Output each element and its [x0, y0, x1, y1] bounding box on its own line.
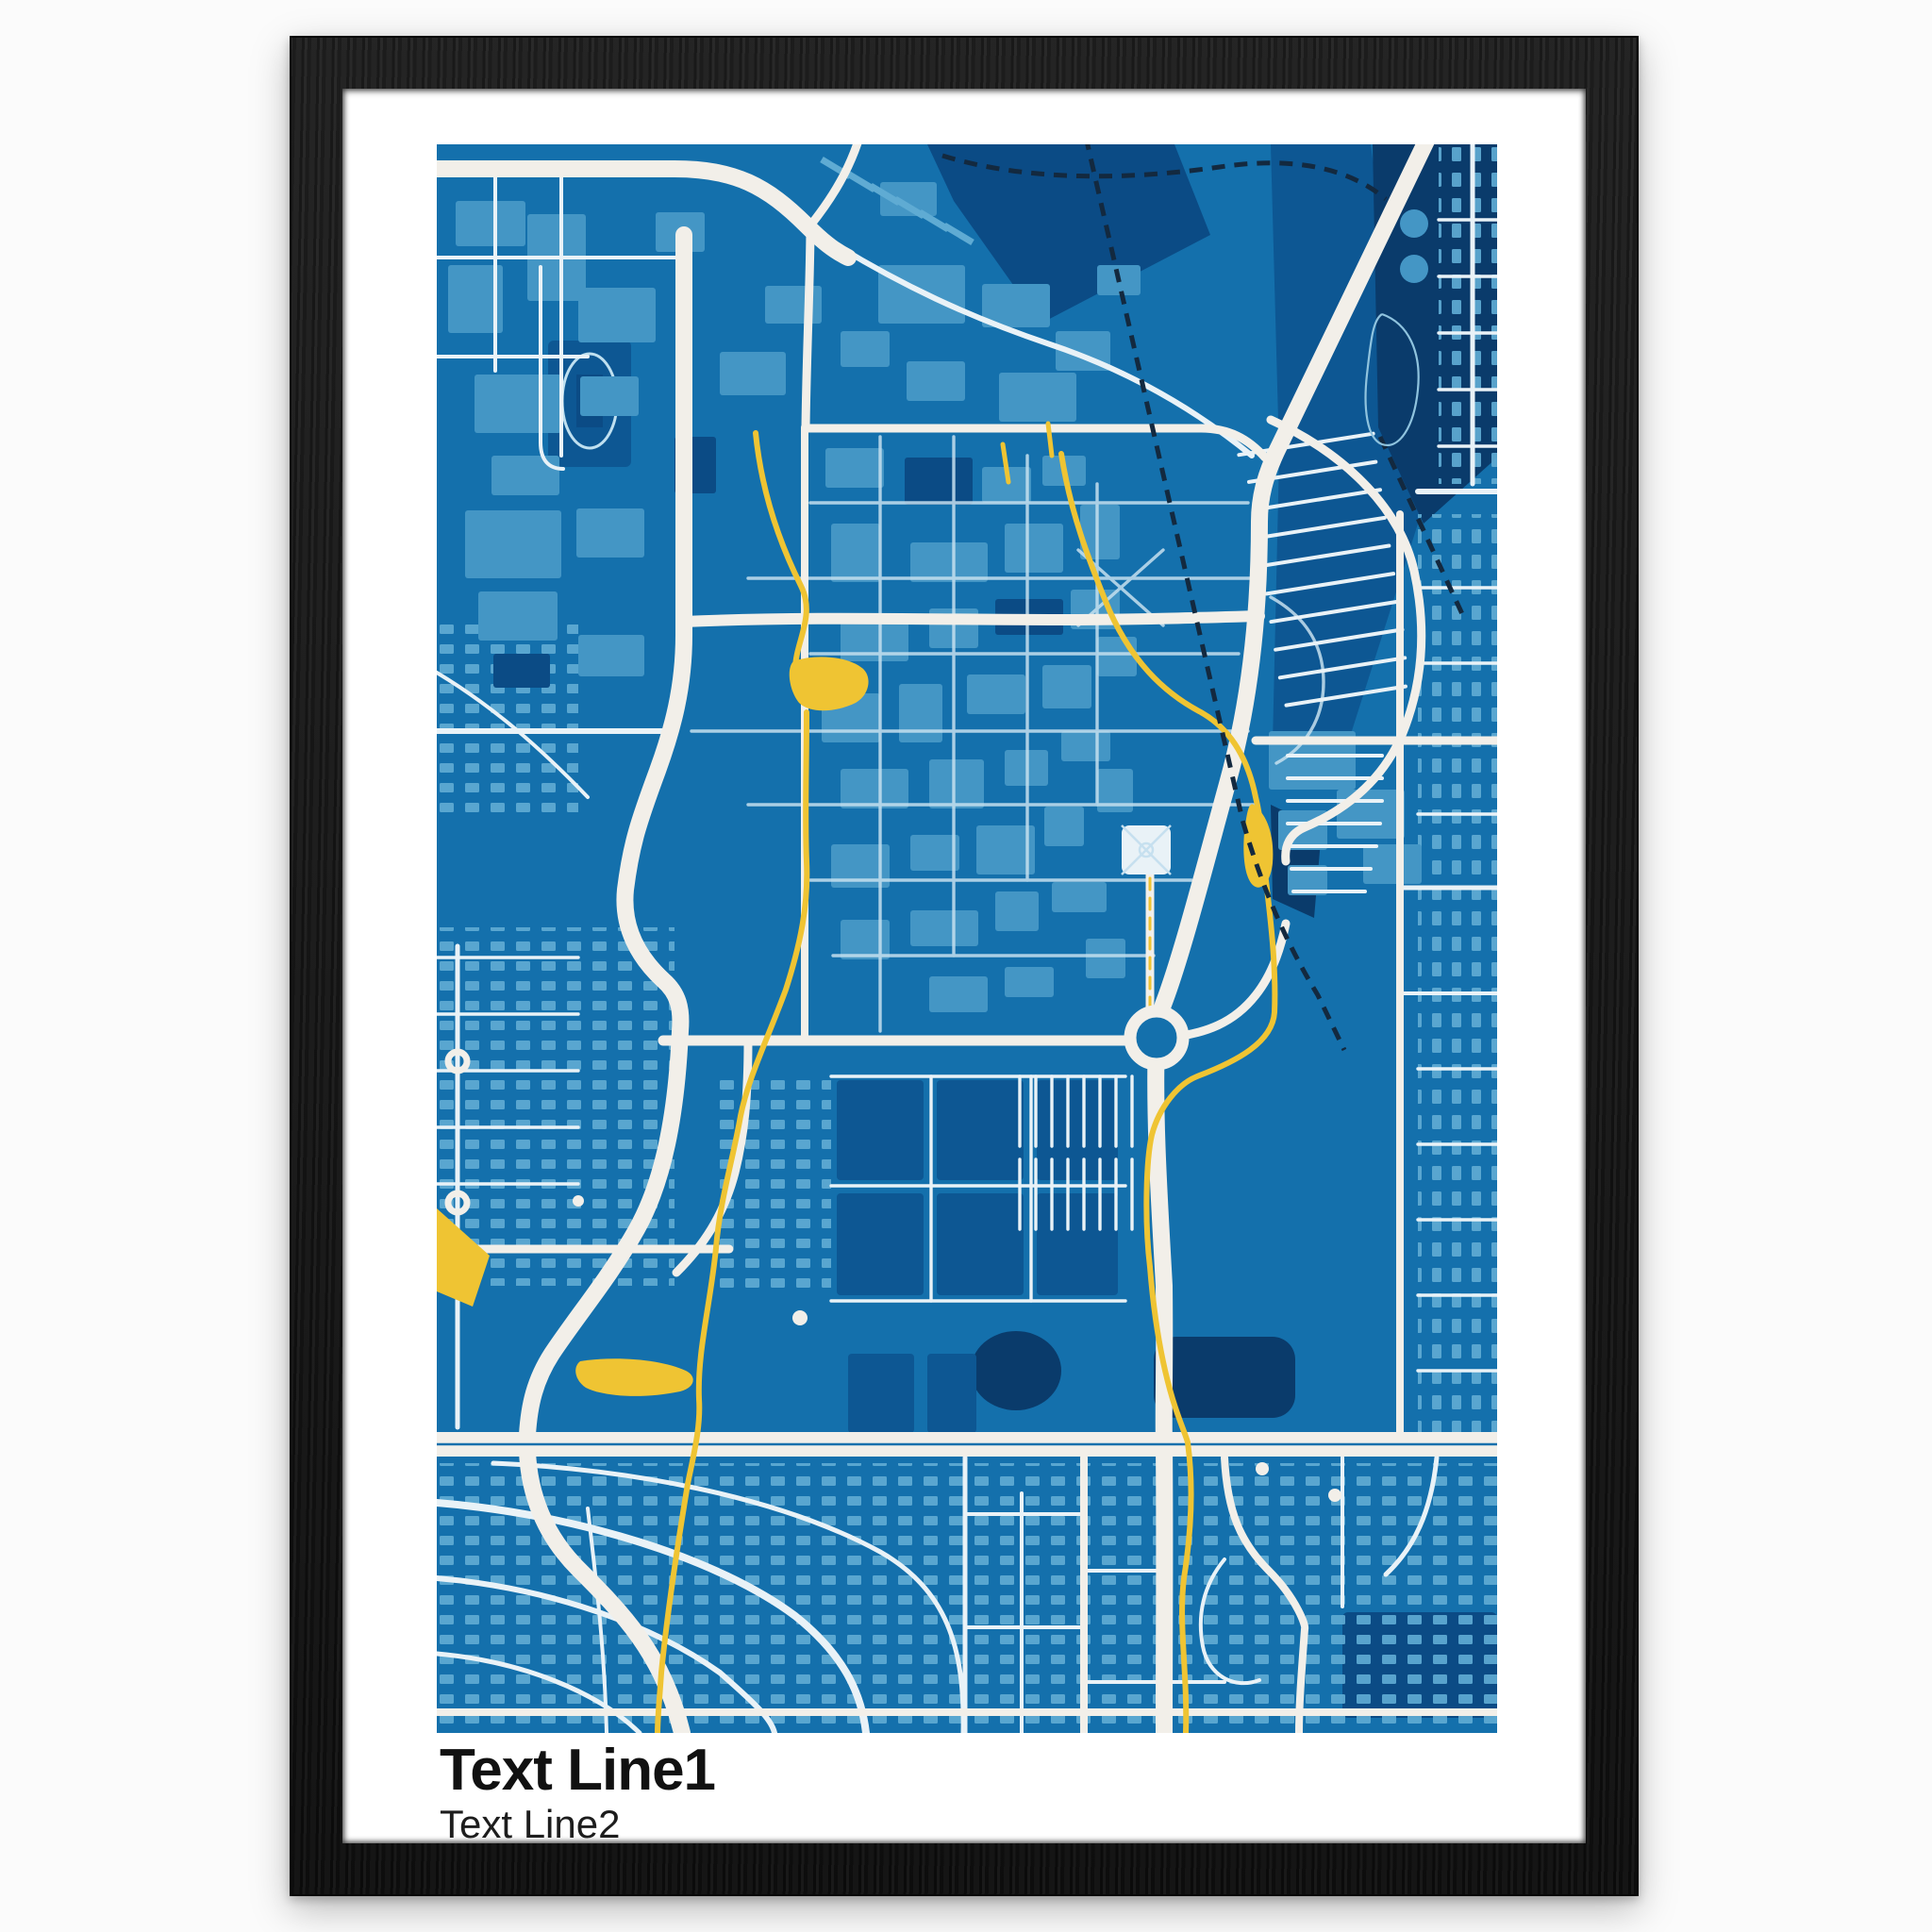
- poster-mat: Text Line1 Text Line2: [342, 89, 1586, 1843]
- poster-frame: Text Line1 Text Line2: [290, 36, 1639, 1896]
- campus-quad-plaza: [1122, 825, 1171, 874]
- map-svg: [437, 144, 1497, 1733]
- poster-caption: Text Line1 Text Line2: [440, 1741, 715, 1844]
- caption-line1: Text Line1: [440, 1741, 715, 1800]
- mockup-stage: Text Line1 Text Line2: [0, 0, 1932, 1932]
- roundabout: [1130, 1011, 1183, 1064]
- caption-line2: Text Line2: [440, 1805, 715, 1844]
- map-artwork: [437, 144, 1497, 1733]
